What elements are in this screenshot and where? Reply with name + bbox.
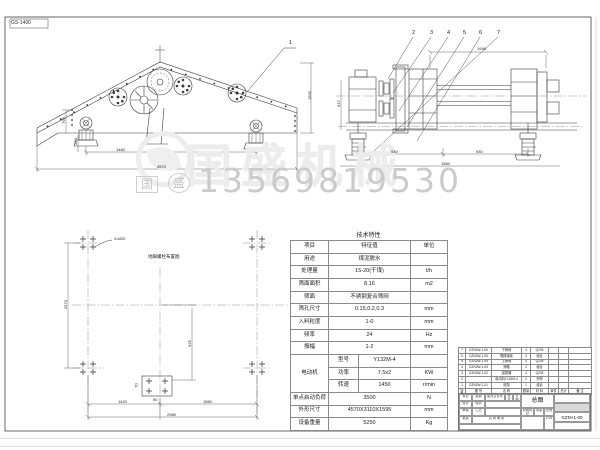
tech-row-value: 1-0 [329,316,411,329]
dim-label: 795 [61,117,66,124]
tech-motor-key: 型号 [329,354,359,367]
tech-row-item: 外形尺寸 [291,405,329,418]
tech-row-value: 1-2 [329,342,411,355]
callout-5: 5 [463,30,466,36]
tech-row-unit: N [411,392,448,405]
tech-row-item: 频率 [291,329,329,342]
tech-row-value: 24 [329,329,411,342]
tech-row-value: 4570X3110X1595 [329,405,411,418]
tech-motor-key: 转速 [329,380,359,393]
tech-row-unit [411,291,448,304]
tb-scale: 比例 [544,408,554,416]
callout-6: 6 [479,30,482,36]
tech-row-unit: mm [411,316,448,329]
tb-mark: 标记 [459,394,472,401]
tech-row-unit: mm [411,342,448,355]
tech-row-item: 单点启动负荷 [291,392,329,405]
tb-count: 处数 [472,394,485,401]
dim-label: 1460 [116,147,125,152]
tech-motor-value: 1450 [359,380,411,393]
bolt-note-leader [95,240,112,247]
callout-4: 4 [447,30,450,36]
callout-2: 2 [412,30,415,36]
tech-table-title: 技术特性 [290,230,447,239]
tech-motor-value: Y132M-4 [359,354,411,367]
drawing-name: 总图 [521,394,554,408]
tech-row-item: 筛孔尺寸 [291,304,329,317]
plan-view-title: 地脚螺栓布置图 [148,254,180,260]
dim-label: 1560 [441,161,450,166]
tech-row-value: 不锈钢复合筛网 [329,291,411,304]
drawing-sheet: 国盛机械 13569819530 国 盛 GS-1400 1 795 250 1… [0,0,600,450]
title-block: 标记 处数 更改文件号 签字 日期 设计 校对 审核 工艺 批准 共 张 第 张… [458,393,591,431]
tech-row-value: 煤泥脱水 [329,253,411,266]
tech-motor-label: 电动机 [291,354,329,392]
tb-file-no: 更改文件号 [485,394,505,401]
sheet-label: GS-1400 [11,20,31,26]
tech-row-item: 用途 [291,253,329,266]
tech-row-unit [411,253,448,266]
tb-weight: 重量 [534,408,544,416]
dim-label: 90 [153,397,157,402]
tech-motor-unit: KW [411,367,448,380]
watermark-phone: 13569819530 [198,161,462,200]
dim-label: 4570 [157,164,166,169]
tech-row-unit: m2 [411,278,448,291]
tech-row-item: 振幅 [291,342,329,355]
tech-row-item: 入料粒度 [291,316,329,329]
callout-3: 3 [430,30,433,36]
dim-label: 925 [187,340,192,347]
dim-label: 930 [391,149,398,154]
callout-1-leader [247,48,296,92]
tech-motor-value: 7.5x2 [359,367,411,380]
tech-row-value: 0.15,0.2,0.3 [329,304,411,317]
dim-label: 2980 [167,412,176,417]
tech-row-item: 处理量 [291,266,329,279]
tb-craft: 工艺 [472,408,485,416]
tb-audit: 审核 [459,408,472,416]
couplings [379,79,394,118]
tech-header-value: 特征值 [329,241,411,254]
tech-motor-unit [411,354,448,367]
dim-label: 1595 [307,91,312,100]
tech-row-value: 15-20(干煤) [329,266,411,279]
drawing-number: GZN×1-00 [554,412,590,422]
tb-sign: 签字 [505,394,513,401]
tech-row-item: 设备重量 [291,418,329,431]
tech-row-value: 5250 [329,418,411,431]
tech-row-item: 筛面面积 [291,278,329,291]
bom-table: 7 GZN2W-1-06 下筛网 4 Q235 6 GZN2W-1-05 隔振弹… [458,347,592,396]
tb-scale-value: 1:15 [544,416,554,430]
plan-dims [64,243,259,420]
plan-centerlines [72,230,290,415]
tech-row-value: 8.16 [329,278,411,291]
pulley-wheels [109,69,246,114]
tech-row-item: 筛面 [291,291,329,304]
tech-row-unit: t/h [411,266,448,279]
tech-header-item: 项目 [291,241,329,254]
tech-header-unit: 单位 [411,241,448,254]
tech-row-unit: mm [411,405,448,418]
dim-label: 70 [134,383,139,387]
tech-row-unit: Kg [411,418,448,431]
tb-sheet: 共 张 第 张 [472,416,521,424]
tb-company-band [554,403,590,412]
tech-row-unit: Hz [411,329,448,342]
dim-label: 930 [476,149,483,154]
tech-motor-unit: r/min [411,380,448,393]
dim-label: 1420 [118,399,127,404]
watermark-stamp-sheng: 盛 [168,173,190,193]
dim-label: 1946 [477,46,486,51]
dim-label: 517 [336,100,341,107]
bolt-note: 4-M20 [114,236,125,241]
tech-motor-key: 功率 [329,367,359,380]
tb-approve: 批准 [459,416,472,424]
tb-stage: 阶段标记 [521,408,534,416]
tb-design: 设计 [459,401,472,408]
tech-row-value: 3500 [329,392,411,405]
callout-7: 7 [497,30,500,36]
callout-1: 1 [289,40,292,46]
dim-label: 250 [73,138,78,145]
dim-label: 2570 [63,300,68,309]
tb-check: 校对 [472,401,485,408]
tb-date: 日期 [513,394,521,401]
dim-label: 1560 [203,399,212,404]
tech-row-unit: mm [411,304,448,317]
tech-table: 项目 特征值 单位 用途 煤泥脱水 处理量 15-20(干煤) t/h 筛面面积… [290,240,448,431]
watermark-stamp-guo: 国 [136,176,158,193]
